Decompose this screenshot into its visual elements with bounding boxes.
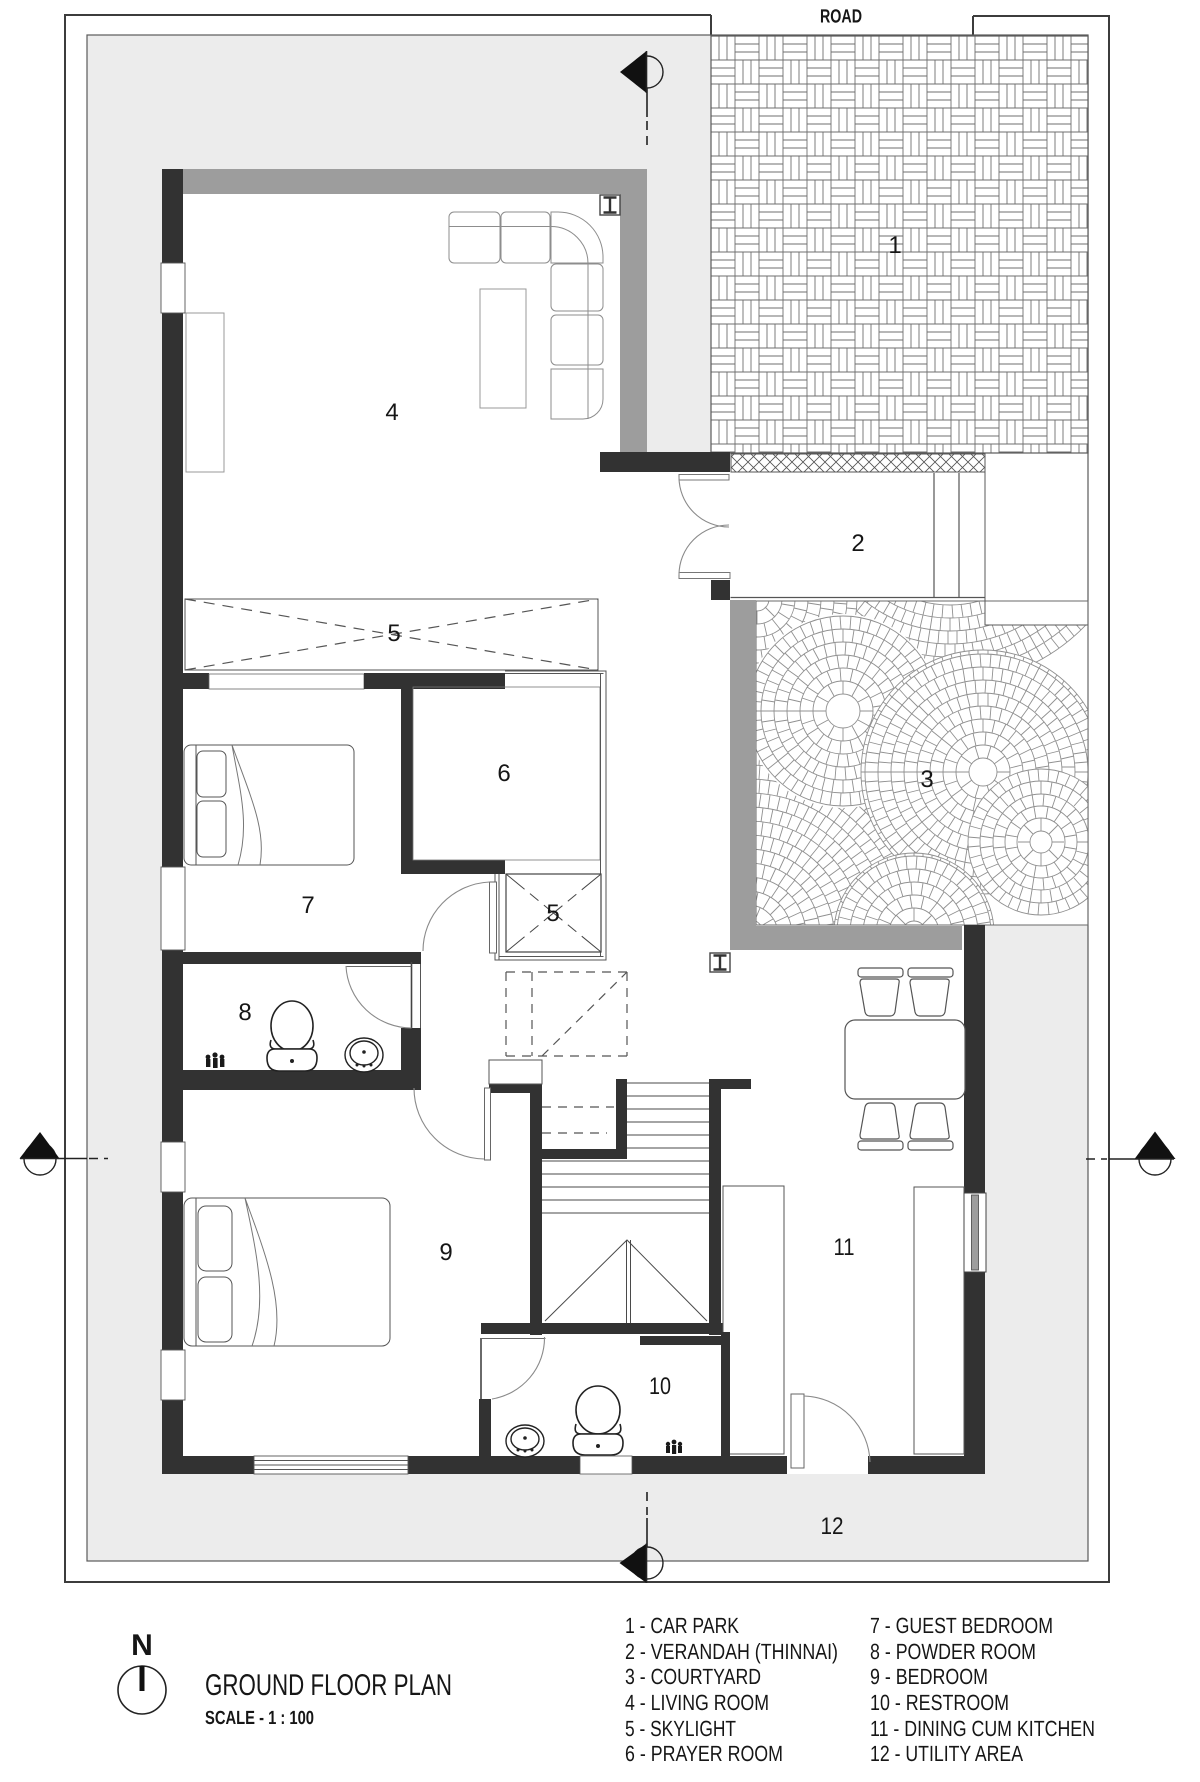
svg-text:N: N (131, 1629, 153, 1662)
svg-text:SCALE - 1 : 100: SCALE - 1 : 100 (205, 1708, 314, 1729)
svg-text:9: 9 (439, 1239, 452, 1266)
svg-text:8: 8 (238, 999, 251, 1026)
svg-text:1: 1 (888, 232, 901, 259)
svg-text:3: 3 (920, 766, 933, 793)
svg-text:4: 4 (385, 399, 398, 426)
svg-text:10 - RESTROOM: 10 - RESTROOM (870, 1690, 1009, 1715)
svg-text:7: 7 (301, 892, 314, 919)
svg-text:6: 6 (497, 760, 510, 787)
svg-text:8 - POWDER ROOM: 8 - POWDER ROOM (870, 1639, 1036, 1664)
svg-text:2 - VERANDAH (THINNAI): 2 - VERANDAH (THINNAI) (625, 1639, 838, 1664)
svg-text:12: 12 (821, 1513, 844, 1540)
svg-text:2: 2 (851, 530, 864, 557)
svg-text:1 - CAR PARK: 1 - CAR PARK (625, 1613, 739, 1638)
svg-text:GROUND FLOOR PLAN: GROUND FLOOR PLAN (205, 1669, 452, 1702)
svg-text:5: 5 (546, 900, 559, 927)
svg-text:11: 11 (834, 1234, 855, 1261)
svg-text:9 - BEDROOM: 9 - BEDROOM (870, 1664, 988, 1689)
svg-text:7 - GUEST BEDROOM: 7 - GUEST BEDROOM (870, 1613, 1053, 1638)
svg-text:10: 10 (649, 1373, 671, 1400)
svg-text:3 - COURTYARD: 3 - COURTYARD (625, 1664, 761, 1689)
svg-text:4 - LIVING ROOM: 4 - LIVING ROOM (625, 1690, 769, 1715)
svg-text:11 - DINING CUM KITCHEN: 11 - DINING CUM KITCHEN (870, 1716, 1095, 1741)
svg-text:ROAD: ROAD (820, 7, 862, 28)
svg-text:6 - PRAYER ROOM: 6 - PRAYER ROOM (625, 1741, 783, 1766)
svg-text:12 - UTILITY AREA: 12 - UTILITY AREA (870, 1741, 1023, 1766)
svg-text:5: 5 (387, 620, 400, 647)
svg-text:5 - SKYLIGHT: 5 - SKYLIGHT (625, 1716, 736, 1741)
